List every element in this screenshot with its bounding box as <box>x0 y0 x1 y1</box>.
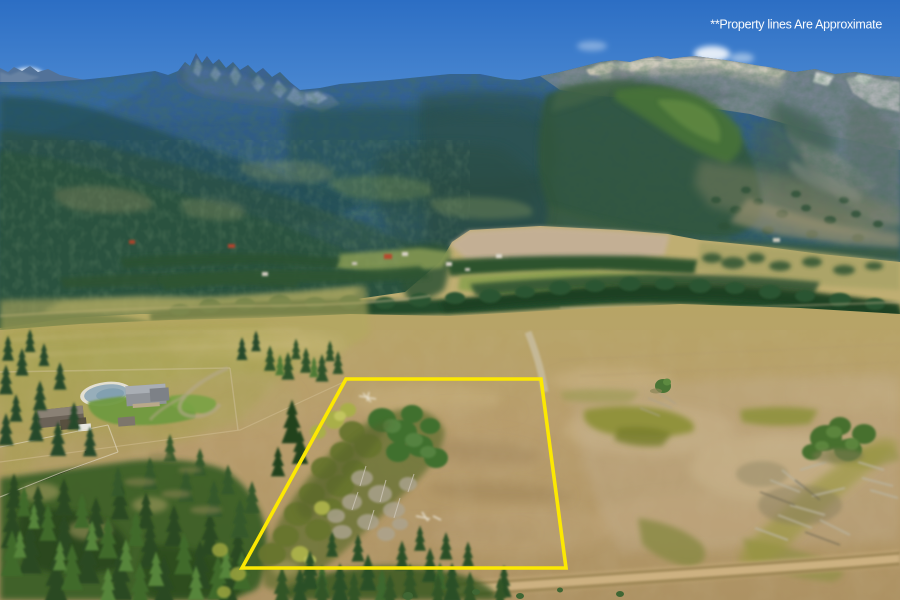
svg-text:**Property lines Are Approxima: **Property lines Are Approximate <box>710 18 882 32</box>
